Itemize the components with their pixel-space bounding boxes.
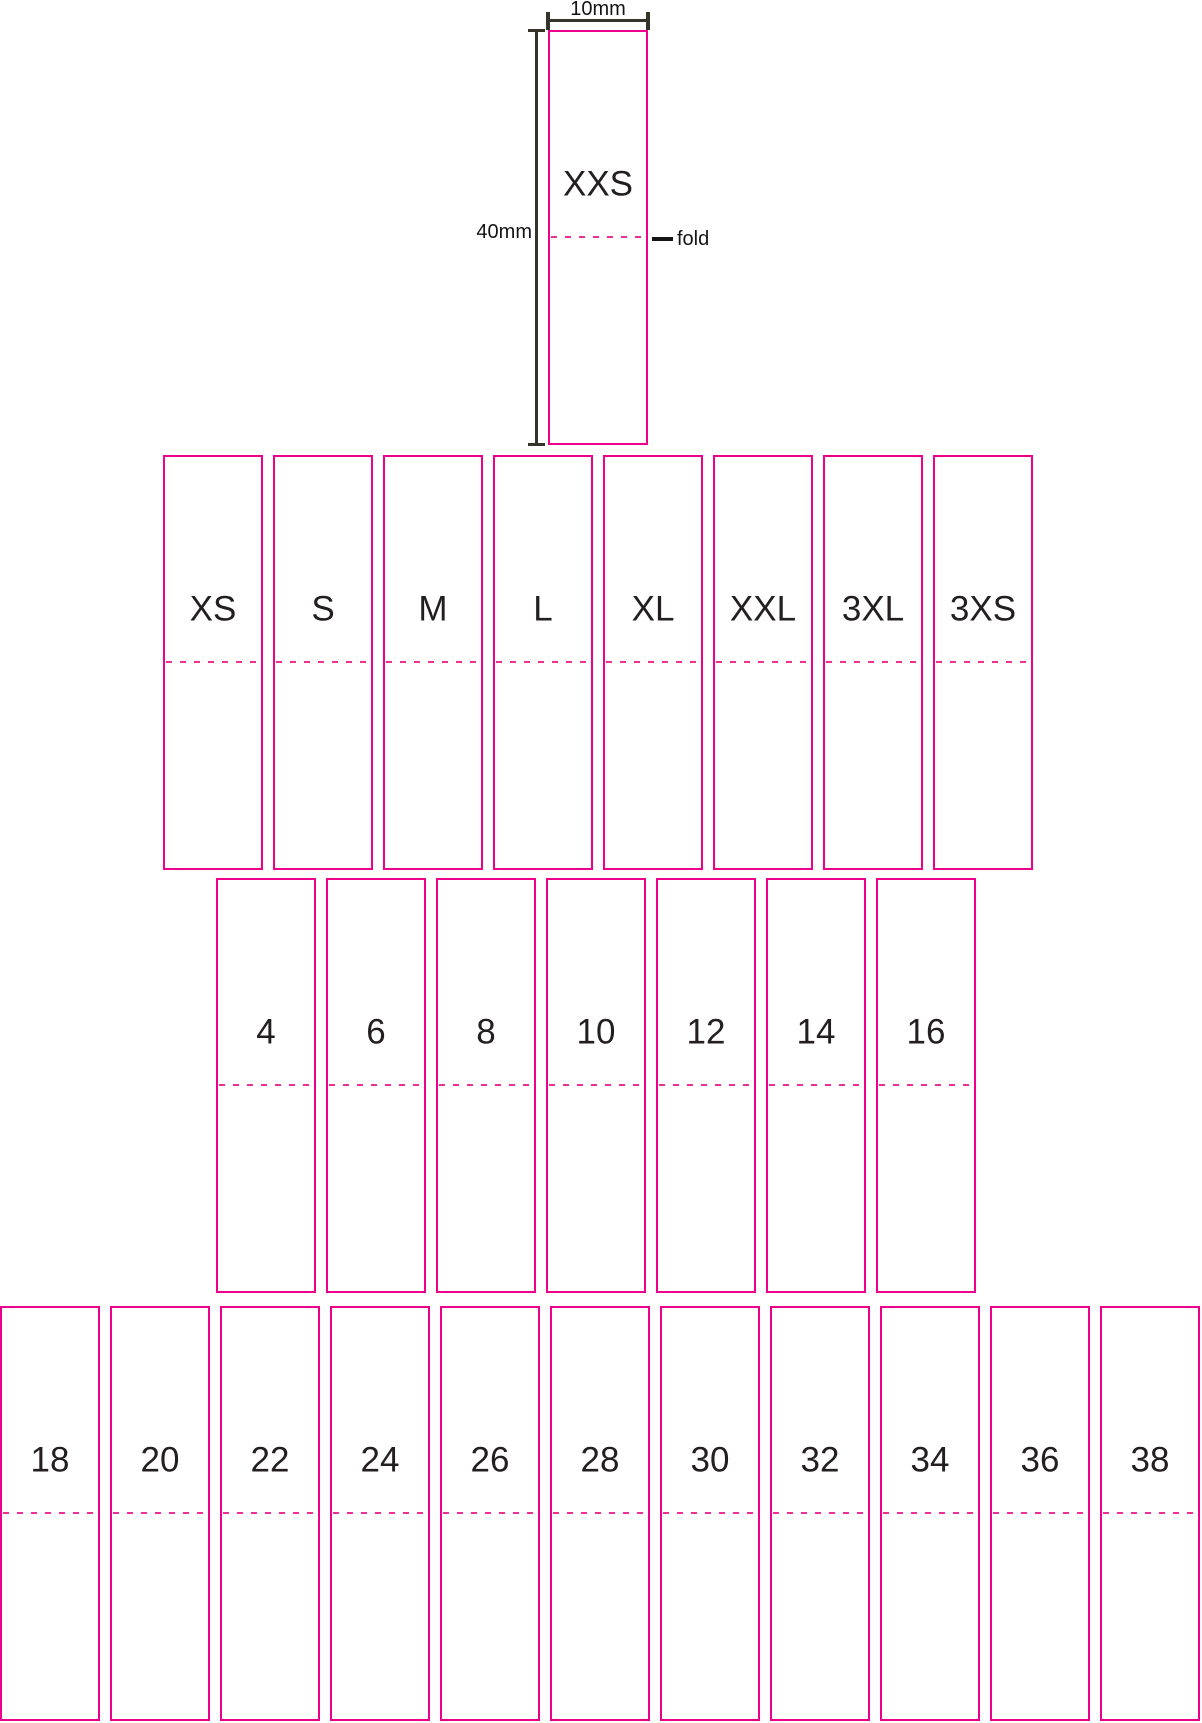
size-label-text: 24	[332, 1443, 428, 1478]
fold-dashed-line	[219, 1084, 311, 1086]
size-label-text: 32	[772, 1443, 868, 1478]
size-label: S	[273, 455, 373, 870]
fold-dashed-line	[659, 1084, 751, 1086]
size-label-text: 36	[992, 1443, 1088, 1478]
size-label: 32	[770, 1306, 870, 1721]
fold-dashed-line	[606, 661, 698, 663]
size-label: 4	[216, 878, 316, 1293]
height-dimension-label: 40mm	[450, 222, 532, 242]
size-label: 28	[550, 1306, 650, 1721]
size-label-text: 30	[662, 1443, 758, 1478]
fold-dashed-line	[826, 661, 918, 663]
fold-dashed-line	[716, 661, 808, 663]
size-label: 10	[546, 878, 646, 1293]
fold-dashed-line	[936, 661, 1028, 663]
size-label: 38	[1100, 1306, 1200, 1721]
size-label-text: 34	[882, 1443, 978, 1478]
height-dimension-tick-top	[528, 29, 545, 32]
fold-dashed-line	[329, 1084, 421, 1086]
height-dimension-tick-bottom	[528, 443, 545, 446]
fold-dashed-line	[553, 1512, 645, 1514]
size-label: 24	[330, 1306, 430, 1721]
size-label-text: 18	[2, 1443, 98, 1478]
size-label-text: 4	[218, 1015, 314, 1050]
size-label: 22	[220, 1306, 320, 1721]
width-dimension-tick-right	[646, 12, 650, 30]
size-label: XS	[163, 455, 263, 870]
kid-size-row: 4 6 8 10 12 14 16	[216, 878, 976, 1293]
letter-size-row: XS S M L XL XXL 3XL 3XS	[163, 455, 1033, 870]
fold-dashed-line	[333, 1512, 425, 1514]
fold-dashed-line	[551, 236, 643, 238]
size-label-text: M	[385, 592, 481, 627]
fold-dashed-line	[3, 1512, 95, 1514]
fold-dashed-line	[1103, 1512, 1195, 1514]
fold-dashed-line	[883, 1512, 975, 1514]
size-label-text: 22	[222, 1443, 318, 1478]
size-label: 26	[440, 1306, 540, 1721]
size-label: L	[493, 455, 593, 870]
fold-dashed-line	[276, 661, 368, 663]
fold-dashed-line	[769, 1084, 861, 1086]
size-label-text: 16	[878, 1015, 974, 1050]
size-label: 30	[660, 1306, 760, 1721]
size-label: 36	[990, 1306, 1090, 1721]
fold-dashed-line	[773, 1512, 865, 1514]
size-label-text: XXL	[715, 592, 811, 627]
size-label-text: 6	[328, 1015, 424, 1050]
fold-pointer-line	[652, 237, 673, 241]
size-label-text: 20	[112, 1443, 208, 1478]
size-label-text: 26	[442, 1443, 538, 1478]
height-dimension-line	[535, 30, 538, 446]
size-label: 34	[880, 1306, 980, 1721]
numeric-size-row: 18 20 22 24 26 28 30 32	[0, 1306, 1200, 1721]
size-label-text: 14	[768, 1015, 864, 1050]
size-label: 12	[656, 878, 756, 1293]
size-label: 20	[110, 1306, 210, 1721]
fold-dashed-line	[496, 661, 588, 663]
fold-dashed-line	[166, 661, 258, 663]
width-dimension-label: 10mm	[548, 0, 648, 19]
width-dimension-line	[548, 19, 648, 22]
size-label-text: 10	[548, 1015, 644, 1050]
size-label-text: 8	[438, 1015, 534, 1050]
fold-dashed-line	[443, 1512, 535, 1514]
size-label-text: 12	[658, 1015, 754, 1050]
size-label-text: 3XS	[935, 592, 1031, 627]
size-label: XXL	[713, 455, 813, 870]
size-label-text: 28	[552, 1443, 648, 1478]
fold-dashed-line	[993, 1512, 1085, 1514]
size-label-text: 3XL	[825, 592, 921, 627]
size-label: 18	[0, 1306, 100, 1721]
size-label: XL	[603, 455, 703, 870]
fold-annotation-label: fold	[677, 229, 709, 249]
fold-dashed-line	[663, 1512, 755, 1514]
size-label-text: XL	[605, 592, 701, 627]
fold-dashed-line	[386, 661, 478, 663]
size-label: 6	[326, 878, 426, 1293]
size-label-text: S	[275, 592, 371, 627]
size-label: M	[383, 455, 483, 870]
fold-dashed-line	[879, 1084, 971, 1086]
width-dimension-tick-left	[546, 12, 550, 30]
size-label: 3XL	[823, 455, 923, 870]
size-label-text: L	[495, 592, 591, 627]
size-label: 8	[436, 878, 536, 1293]
size-label-text: XXS	[550, 167, 646, 202]
size-label: 16	[876, 878, 976, 1293]
size-label: 14	[766, 878, 866, 1293]
fold-dashed-line	[223, 1512, 315, 1514]
fold-dashed-line	[113, 1512, 205, 1514]
fold-dashed-line	[439, 1084, 531, 1086]
fold-dashed-line	[549, 1084, 641, 1086]
size-label: 3XS	[933, 455, 1033, 870]
size-label-text: XS	[165, 592, 261, 627]
size-label-text: 38	[1102, 1443, 1198, 1478]
size-label: XXS	[548, 30, 648, 445]
label-template-sheet: 10mm 40mm fold XXS XS S M L XL	[0, 0, 1202, 1723]
